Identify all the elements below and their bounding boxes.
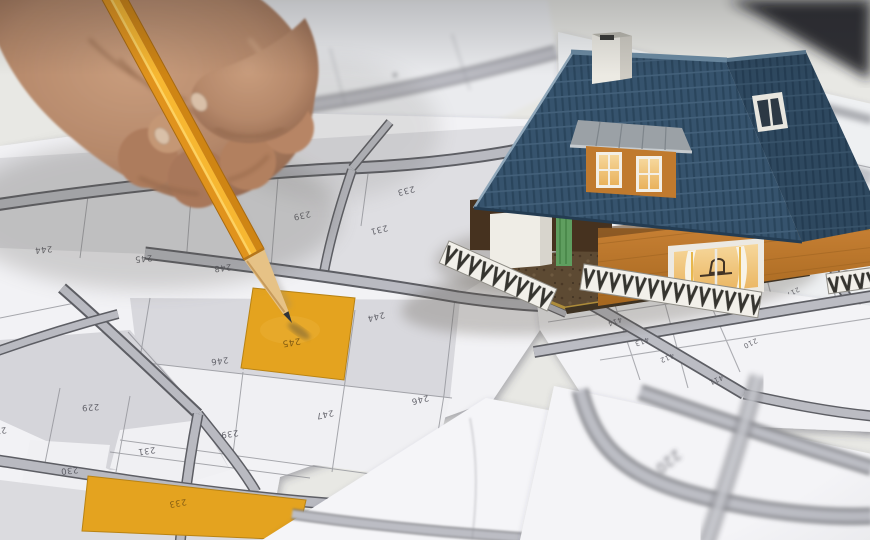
parcel-label: 228	[0, 424, 7, 437]
roof-window	[752, 92, 788, 132]
parcel-label: 229	[81, 401, 99, 412]
house-green-door	[556, 214, 572, 266]
house-dormer	[570, 120, 692, 198]
house-white-cube	[490, 210, 540, 270]
photo-cadastral-map-scene: 302 310 217 216 215 214 218 219 209	[0, 0, 870, 540]
scene-canvas: 302 310 217 216 215 214 218 219 209	[0, 0, 870, 540]
house-chimney	[592, 32, 632, 84]
dormer-window-left	[596, 152, 622, 188]
parcel-label: 230	[60, 464, 79, 476]
dormer-window-right	[636, 156, 662, 192]
